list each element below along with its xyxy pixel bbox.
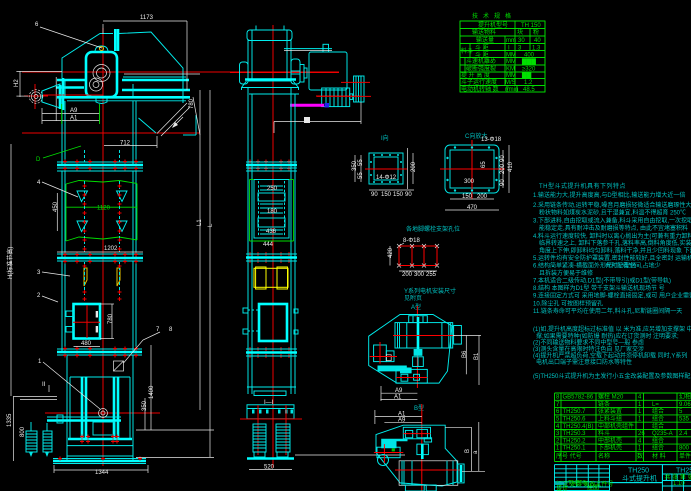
svg-text:TH型斗式提升机具有下列特点: TH型斗式提升机具有下列特点 [539, 182, 626, 190]
svg-text:7.本机适合二级传动,D1型(不带导引)或D1型(带导轨): 7.本机适合二级传动,D1型(不带导引)或D1型(带导轨) [533, 277, 671, 285]
svg-text:见附页: 见附页 [404, 294, 422, 302]
svg-text:255: 255 [426, 272, 437, 278]
svg-text:提 升 高 度: 提 升 高 度 [461, 71, 490, 79]
svg-text:各地脚螺栓支架孔位: 各地脚螺栓支架孔位 [406, 225, 460, 233]
svg-text:TH250.3: TH250.3 [563, 431, 587, 437]
svg-text:斗 距: 斗 距 [475, 52, 489, 59]
svg-text:数: 数 [637, 452, 643, 460]
svg-text:技术规格: 技术规格 [472, 12, 516, 20]
svg-text:350: 350 [352, 160, 358, 171]
svg-text:8-Φ18: 8-Φ18 [403, 238, 420, 244]
svg-text:MM: MM [506, 59, 516, 65]
svg-text:螺栓 M20: 螺栓 M20 [598, 393, 624, 401]
svg-text:幻相: 幻相 [679, 393, 691, 401]
svg-text:B: B [465, 449, 471, 453]
svg-text:800: 800 [20, 426, 26, 437]
svg-text:临界转速之上, 卸料下落参千孔,落料率高,倒料角度低,实装载: 临界转速之上, 卸料下落参千孔,落料率高,倒料角度低,实装载率工具卸料特卸料 [539, 239, 691, 247]
svg-text:55: 55 [358, 172, 364, 179]
svg-text:2.4: 2.4 [679, 431, 688, 437]
svg-text:410: 410 [508, 161, 514, 172]
svg-text:800: 800 [679, 446, 690, 452]
svg-text:中部机壳组件: 中部机壳组件 [598, 422, 634, 430]
svg-text:斗速机離め: 斗速机離め [466, 57, 496, 65]
svg-text:200: 200 [402, 272, 413, 278]
svg-text:1.2: 1.2 [524, 80, 533, 86]
svg-text:GB5782-86: GB5782-86 [563, 395, 594, 401]
svg-text:8.结构 本图样为D1型 带千支架斗输送机现场节 号: 8.结构 本图样为D1型 带千支架斗输送机现场节 号 [533, 284, 665, 292]
svg-text:上料斗组: 上料斗组 [598, 415, 622, 423]
svg-text:Q235-A: Q235-A [652, 431, 673, 437]
svg-text:D: D [36, 157, 41, 163]
svg-text:B型: B型 [414, 404, 424, 412]
svg-text:1120: 1120 [97, 206, 111, 212]
svg-text:30: 30 [518, 38, 525, 44]
svg-text:1202: 1202 [104, 246, 118, 252]
svg-text:组合: 组合 [652, 436, 664, 444]
svg-text:40: 40 [534, 38, 541, 44]
svg-text:9.连接固定方式可 采用地脚-螺栓直接固定,或可 用户企业需: 9.连接固定方式可 采用地脚-螺栓直接固定,或可 用户企业需要另中间添加导轨机构… [533, 292, 691, 300]
svg-text:组合: 组合 [652, 415, 664, 423]
svg-text:250: 250 [267, 186, 278, 192]
svg-text:4.料斗运行速度较快, 卸料时以离心抛出为主(可兼有重力卸料: 4.料斗运行速度较快, 卸料时以离心抛出为主(可兼有重力卸料),工况转速始终保持… [533, 232, 691, 240]
svg-text:1:10: 1:10 [673, 481, 685, 487]
svg-text:角度上下伸,即卸料均匀卸料,落料干净,并且少回料现象 下部除: 角度上下伸,即卸料均匀卸料,落料干净,并且少回料现象 下部除余料较少 [539, 247, 691, 255]
svg-text:料斗: 料斗 [598, 429, 610, 437]
svg-text:绘图: 绘图 [587, 484, 599, 491]
svg-text:TH25: TH25 [676, 468, 691, 475]
svg-text:斗子运行速度: 斗子运行速度 [461, 78, 497, 86]
svg-text:TH 150: TH 150 [521, 23, 541, 29]
svg-text:电机出口端子需注意接口防水等特性: 电机出口端子需注意接口防水等特性 [536, 358, 632, 366]
svg-text:≥320: ≥320 [522, 67, 536, 73]
svg-text:TH250.4(B): TH250.4(B) [563, 424, 594, 430]
svg-text:有利配管空间,占地少: 有利配管空间,占地少 [605, 262, 661, 270]
svg-text:B6: B6 [462, 350, 468, 358]
svg-text:组合: 组合 [652, 407, 664, 415]
svg-text:斗式提升机: 斗式提升机 [622, 474, 657, 483]
svg-text:1173: 1173 [140, 15, 154, 21]
svg-text:I向: I向 [381, 134, 389, 142]
svg-text:(5)TH250斗式提升机为主发行小五金改装配置及参数图样配: (5)TH250斗式提升机为主发行小五金改装配置及参数图样配置 参见0. [533, 372, 691, 380]
svg-text:780: 780 [108, 313, 114, 324]
svg-text:单件重: 单件重 [679, 452, 691, 460]
svg-text:名称: 名称 [598, 452, 610, 460]
svg-text:MM: MM [506, 73, 516, 79]
svg-text:2.采用链条传动,运转平稳,噪音月磨损轻微适合输送磨琢性大,: 2.采用链条传动,运转平稳,噪音月磨损轻微适合输送磨琢性大,堆积密度较小一般颗粒… [533, 201, 691, 209]
svg-text:535: 535 [679, 417, 690, 423]
svg-text:KM: KM [506, 67, 515, 73]
svg-text:300: 300 [414, 272, 425, 278]
svg-text:10.除尘孔 可按图样预留孔: 10.除尘孔 可按图样预留孔 [533, 300, 603, 308]
svg-text:组合: 组合 [652, 422, 664, 430]
svg-text:3.下部进料,自由挖取或流入兼备,料斗采用自由挖取,一次挖取: 3.下部进料,自由挖取或流入兼备,料斗采用自由挖取,一次挖取允许带挖起,力学性 [533, 217, 691, 225]
svg-text:电动机转轴 数: 电动机转轴 数 [461, 85, 499, 93]
svg-text:破断强度裂: 破断强度裂 [466, 65, 496, 73]
svg-text:张紧装置: 张紧装置 [598, 407, 622, 415]
svg-text:1335: 1335 [7, 413, 13, 427]
svg-text:组合: 组合 [652, 444, 664, 452]
svg-text:粉状物料如煤炭水泥砂,且干湿兼宜,料温不得超育 250℃: 粉状物料如煤炭水泥砂,且干湿兼宜,料温不得超育 250℃ [539, 209, 686, 217]
svg-text:H2: H2 [14, 79, 20, 87]
svg-text:序号 代号: 序号 代号 [556, 452, 582, 460]
svg-text:444: 444 [263, 242, 274, 248]
svg-text:提升机型号: 提升机型号 [478, 21, 508, 29]
svg-text:材 料: 材 料 [652, 452, 666, 460]
svg-text:块: 块 [517, 28, 523, 36]
svg-text:且拆装方便易于维修: 且拆装方便易于维修 [539, 269, 593, 277]
svg-text:TH250.6: TH250.6 [563, 417, 587, 423]
svg-text:200: 200 [500, 163, 506, 174]
svg-text:150: 150 [462, 194, 473, 200]
svg-text:150: 150 [381, 192, 392, 198]
svg-text:48.5: 48.5 [523, 87, 535, 93]
svg-text:粉: 粉 [533, 28, 539, 36]
svg-text:200: 200 [411, 161, 417, 172]
svg-text:L1: L1 [197, 219, 203, 226]
svg-text:撑;如果需要特种(如防爆 耐热)应在订货测时 注明要求;: 撑;如果需要特种(如防爆 耐热)应在订货测时 注明要求; [536, 332, 679, 340]
svg-text:300: 300 [464, 179, 475, 185]
svg-text:Y系列电机安装尺寸: Y系列电机安装尺寸 [404, 287, 456, 295]
svg-text:中部机壳: 中部机壳 [598, 436, 622, 444]
svg-text:400: 400 [524, 53, 535, 59]
svg-text:90: 90 [500, 179, 506, 186]
svg-text:65: 65 [481, 161, 487, 168]
svg-text:200: 200 [477, 194, 488, 200]
svg-text:(1)如,提升机高度超标过标准值 以 米为准,应另增加支撑架: (1)如,提升机高度超标过标准值 以 米为准,应另增加支撑架 中间支 [533, 325, 691, 333]
svg-text:输送物料: 输送物料 [472, 28, 496, 36]
svg-text:420: 420 [388, 247, 394, 258]
svg-text:350: 350 [142, 400, 148, 411]
svg-text:H(标准节高): H(标准节高) [6, 247, 14, 279]
svg-text:(3)测头含量在高限时特注色自 见厂家交涉: (3)测头含量在高限时特注色自 见厂家交涉 [533, 345, 644, 353]
svg-text:输送量: 输送量 [476, 36, 494, 44]
svg-text:470: 470 [467, 205, 478, 211]
svg-text:A型: A型 [411, 303, 421, 311]
svg-text:共 张 第 张: 共 张 第 张 [665, 473, 691, 481]
svg-text:TH250: TH250 [568, 481, 587, 487]
svg-text:料斗: 料斗 [461, 47, 473, 55]
svg-text:150: 150 [393, 192, 404, 198]
svg-text:▇▇: ▇▇ [521, 72, 532, 79]
svg-text:(4)提升机严禁超负荷,空载下起动并须停机卸载 同时,Y系列: (4)提升机严禁超负荷,空载下起动并须停机卸载 同时,Y系列 [533, 352, 687, 360]
svg-text:MM: MM [506, 53, 516, 59]
svg-text:1344: 1344 [95, 470, 109, 476]
svg-text:下部机壳: 下部机壳 [598, 444, 622, 452]
svg-text:1400: 1400 [149, 385, 155, 399]
svg-text:14-Φ12: 14-Φ12 [376, 175, 397, 181]
svg-text:M/S: M/S [505, 80, 516, 86]
svg-text:TH250: TH250 [628, 468, 649, 475]
svg-text:450: 450 [53, 201, 59, 212]
svg-text:II: II [42, 382, 46, 388]
svg-text:(2)不同输送物料要求不同中型号—般 参虑: (2)不同输送物料要求不同中型号—般 参虑 [533, 339, 644, 347]
svg-text:L=: L= [652, 402, 659, 408]
svg-text:5.运转件均有安全防护罩装置,密封性能较好,且全密封 运输机: 5.运转件均有安全防护罩装置,密封性能较好,且全密封 运输机亦属环保型机械,使用 [533, 254, 691, 262]
svg-text:TH250.1: TH250.1 [563, 446, 587, 452]
svg-text:520: 520 [264, 465, 275, 471]
svg-text:90: 90 [371, 192, 378, 198]
svg-text:11.链条寿命可平均在使用二年,料斗孔,尼斯链圈间隔一天: 11.链条寿命可平均在使用二年,料斗孔,尼斯链圈间隔一天 [533, 307, 682, 315]
svg-text:▇▇▇: ▇▇▇ [521, 58, 536, 65]
svg-text:9.06: 9.06 [679, 402, 691, 408]
svg-text:1.输送能力大,提升高度高,与D型相比,输送能力增大近一倍: 1.输送能力大,提升高度高,与D型相比,输送能力增大近一倍 [533, 191, 685, 199]
svg-text:链条: 链条 [598, 400, 610, 408]
svg-text:26: 26 [638, 431, 645, 437]
svg-text:180: 180 [267, 209, 278, 215]
svg-text:r/min: r/min [505, 87, 518, 93]
svg-text:斗 距: 斗 距 [475, 45, 489, 52]
svg-text:13-Φ18: 13-Φ18 [481, 137, 502, 143]
svg-text:能稳定走,具有耐冲击及耐磨损等特点, 由此不宜堵塞积料: 能稳定走,具有耐冲击及耐磨损等特点, 由此不宜堵塞积料 [539, 224, 688, 232]
svg-text:90: 90 [500, 155, 506, 162]
svg-text:TH250.2: TH250.2 [563, 438, 587, 444]
svg-text:436: 436 [266, 229, 277, 235]
svg-text:B1: B1 [474, 352, 480, 360]
svg-text:mm: mm [506, 38, 516, 44]
svg-text:1.3: 1.3 [532, 46, 541, 52]
svg-text:TH250.7: TH250.7 [563, 409, 587, 415]
svg-text:90: 90 [405, 192, 412, 198]
svg-text:55: 55 [358, 159, 364, 166]
